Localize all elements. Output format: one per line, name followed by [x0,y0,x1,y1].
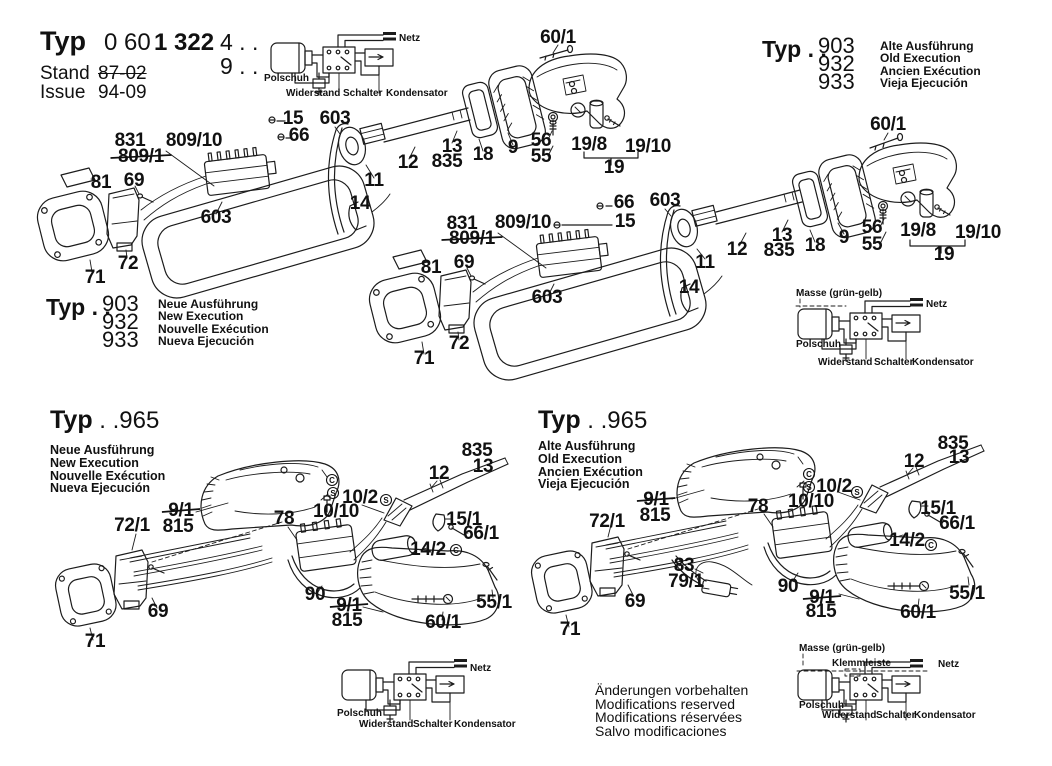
drawing-965-new [52,458,508,722]
l-965new-71: 71 [85,631,106,652]
l-965old-66-1: 66/1 [939,513,976,534]
title-number-light: 0 60 [104,29,151,57]
mark-965old-s2: S [852,487,863,498]
language-line: Alte Ausführung [538,440,738,453]
w1-kondensator: Kondensator [386,88,448,99]
typ903-new-languages: Neue Ausführung New Execution Nouvelle E… [158,298,269,348]
language-line: New Execution [50,457,250,470]
w1-schalter: Schalter [343,88,383,99]
footer-notes: Änderungen vorbehalten Modifications res… [595,684,815,738]
l-903new-19-8: 19/8 [571,134,607,155]
typ965-old-number: . .965 [581,407,648,434]
l-903new-809-10: 809/10 [166,130,222,151]
parts-diagram-page: 831809/1809/10156660381696037271111460/1… [0,0,1052,766]
w2-masse: Masse (grün-gelb) [796,288,882,299]
l-965old-79-1: 79/1 [668,571,705,592]
l-903new-12: 12 [398,152,419,173]
w2-kondensator: Kondensator [912,357,974,368]
l-903old-72: 72 [449,333,470,354]
language-line: Nueva Ejecución [158,335,269,347]
mark-965old-c1: C [804,469,815,480]
diagram-canvas: 831809/1809/10156660381696037271111460/1… [0,0,1052,766]
svg-text:S: S [806,483,812,492]
l-965old-69: 69 [625,591,646,612]
l-965new-55-1: 55/1 [476,592,513,613]
l-965old-90: 90 [778,576,799,597]
mark-965old-c2: C [926,540,937,551]
l-903old-835: 835 [764,240,796,261]
l-903new-18: 18 [473,144,494,165]
typ965-old-label: Typ [538,406,581,434]
svg-text:S: S [383,496,389,505]
l-965old-12: 12 [904,451,925,472]
l-903old-9: 9 [839,227,849,248]
l-903old-809-10: 809/10 [495,212,551,233]
language-line: Vieja Ejecución [538,478,738,491]
title-typ-label: Typ [40,26,86,57]
w4-kondensator: Kondensator [914,710,976,721]
l-965old-71: 71 [560,619,581,640]
w3-widerstand: Widerstand [359,719,413,730]
typ965-new-title: Typ . .965 [50,406,250,435]
language-line: Vieja Ejecución [880,77,981,89]
l-903old-19: 19 [934,244,955,265]
l-965old-815b: 815 [806,601,838,622]
l-903new-603a: 603 [320,108,351,129]
footer-note-line: Salvo modificaciones [595,725,815,739]
l-903old-12: 12 [727,239,748,260]
language-line: Old Execution [538,453,738,466]
l-903new-81: 81 [91,172,112,193]
title-suffix-bottom: 9 . . [220,53,258,80]
l-903new-69: 69 [124,170,145,191]
w2-polschuh: Polschuh [796,339,841,350]
l-965old-60-1: 60/1 [900,602,937,623]
w4-masse: Masse (grün-gelb) [799,643,885,654]
l-965new-69: 69 [148,601,169,622]
svg-text:C: C [329,476,335,485]
wiring-schematic-903-old [798,298,923,361]
w1-netz: Netz [399,33,420,44]
typ965-old-title: Typ . .965 [538,406,738,435]
l-965new-14-2: 14/2 [410,539,446,560]
typ903-new-number: 933 [102,331,138,349]
svg-text:C: C [453,546,459,555]
l-903new-66: 66 [289,125,310,146]
type-block-965-old: Typ . .965 Alte Ausführung Old Execution… [538,406,738,491]
l-965old-78: 78 [748,496,769,517]
w3-netz: Netz [470,663,491,674]
w3-schalter: Schalter [413,719,453,730]
l-965old-10-10: 10/10 [788,491,834,512]
l-903new-72: 72 [118,253,139,274]
l-903old-55: 55 [862,234,883,255]
l-965new-815a: 815 [163,516,195,537]
l-903new-19-10: 19/10 [625,136,671,157]
typ903-old-number: 933 [818,73,854,91]
svg-text:C: C [806,470,812,479]
language-line: Nueva Ejecución [50,482,250,495]
language-line: Old Execution [880,52,981,64]
svg-text:S: S [854,488,860,497]
title-block: Typ 0 60 1 322 4 . . 9 . . Stand 87-02 I… [40,26,310,106]
svg-text:C: C [928,541,934,550]
l-965old-72-1: 72/1 [589,511,626,532]
w2-widerstand: Widerstand [818,357,872,368]
title-number-bold: 1 322 [154,29,214,57]
l-965new-10-10: 10/10 [313,501,359,522]
typ903-old-languages: Alte Ausführung Old Execution Ancien Exé… [880,40,981,90]
l-903new-603b: 603 [201,207,232,228]
issue-value: 94-09 [98,82,147,104]
l-903new-60-1: 60/1 [540,27,577,48]
l-965new-72-1: 72/1 [114,515,151,536]
l-903new-19: 19 [604,157,625,178]
l-965new-60-1: 60/1 [425,612,462,633]
l-965new-13: 13 [473,456,494,477]
l-903old-66: 66 [614,192,635,213]
w4-schalter: Schalter [876,710,916,721]
l-965old-55-1: 55/1 [949,583,986,604]
typ903-old-numbers: 903 932 933 [818,37,854,91]
title-suffix-top: 4 . . [220,29,258,56]
l-903old-71: 71 [414,348,435,369]
l-903new-835: 835 [432,151,464,172]
l-903new-71: 71 [85,267,106,288]
typ965-old-languages: Alte Ausführung Old Execution Ancien Exé… [538,440,738,491]
typ965-new-label: Typ [50,406,93,434]
l-903old-19-10: 19/10 [955,222,1001,243]
language-line: Neue Ausführung [50,444,250,457]
l-903old-15: 15 [615,211,636,232]
mark-965new-s2: S [381,495,392,506]
l-903old-69: 69 [454,252,475,273]
w4-klemmleiste: Klemmleiste [832,658,891,669]
type-block-965-new: Typ . .965 Neue Ausführung New Execution… [50,406,250,495]
l-965old-13: 13 [949,447,970,468]
l-965new-90: 90 [305,584,326,605]
l-903old-19-8: 19/8 [900,220,936,241]
l-903old-11: 11 [695,252,715,273]
w3-polschuh: Polschuh [337,708,382,719]
typ965-new-languages: Neue Ausführung New Execution Nouvelle E… [50,444,250,495]
l-965old-14-2: 14/2 [889,530,925,551]
svg-text:S: S [330,489,336,498]
language-line: New Execution [158,310,269,322]
l-965new-66-1: 66/1 [463,523,500,544]
mark-965new-s1: S [328,488,339,499]
w3-kondensator: Kondensator [454,719,516,730]
typ965-new-number: . .965 [93,407,160,434]
ground-wire-903-old [796,299,846,307]
l-903new-11: 11 [364,170,384,191]
l-903new-55: 55 [531,146,552,167]
l-903old-14: 14 [679,277,700,298]
w4-netz: Netz [938,659,959,670]
l-965new-78: 78 [274,508,295,529]
l-903old-81: 81 [421,257,442,278]
l-965new-815b: 815 [332,610,364,631]
l-903old-603a: 603 [650,190,681,211]
w2-netz: Netz [926,299,947,310]
w2-schalter: Schalter [874,357,914,368]
l-965new-12: 12 [429,463,450,484]
mark-965new-c1: C [327,475,338,486]
l-903new-14: 14 [350,193,371,214]
issue-label: Issue [40,82,85,104]
l-903old-60-1: 60/1 [870,114,907,135]
l-903old-18: 18 [805,235,826,256]
typ903-new-numbers: 903 932 933 [102,295,138,349]
w4-widerstand: Widerstand [822,710,876,721]
l-903old-603b: 603 [532,287,563,308]
l-965old-815a: 815 [640,505,672,526]
mark-965new-c2: C [451,545,462,556]
l-903new-9: 9 [508,137,518,158]
